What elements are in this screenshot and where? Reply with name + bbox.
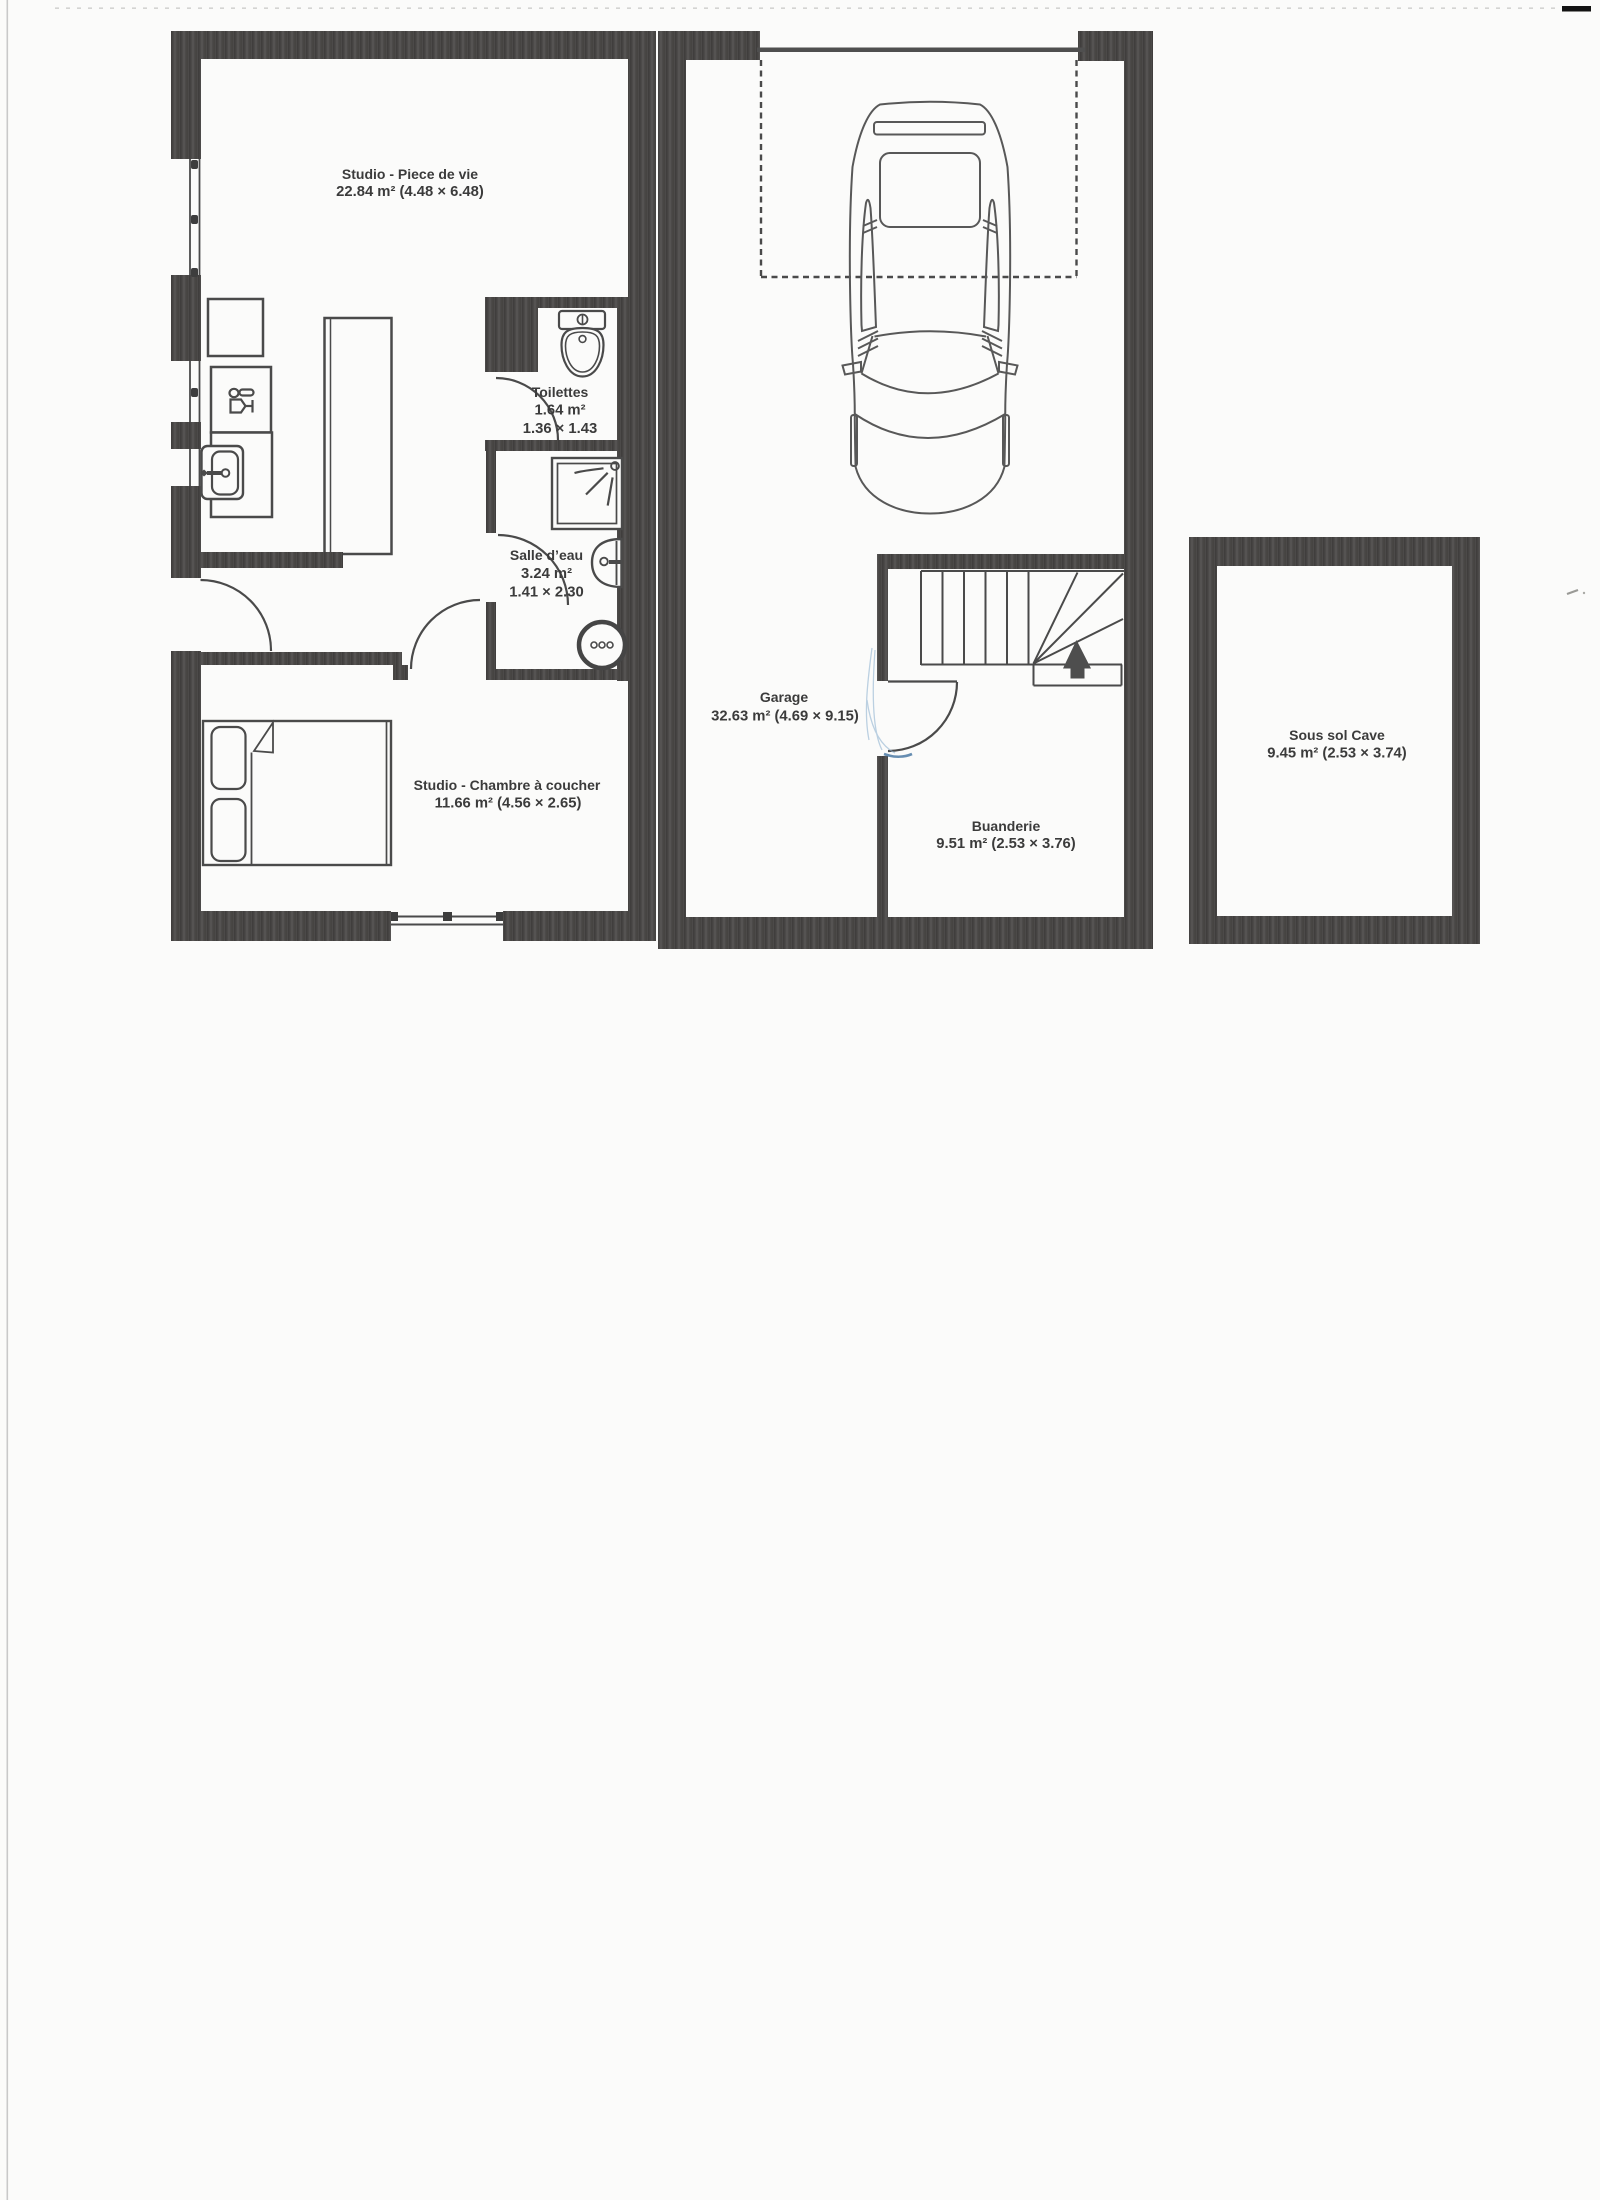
svg-text:Garage: Garage — [760, 689, 808, 705]
svg-text:22.84 m² (4.48 × 6.48): 22.84 m² (4.48 × 6.48) — [336, 184, 484, 200]
svg-text:9.45 m² (2.53 × 3.74): 9.45 m² (2.53 × 3.74) — [1267, 746, 1406, 762]
svg-text:Salle d’eau: Salle d’eau — [510, 547, 583, 563]
svg-text:Sous sol Cave: Sous sol Cave — [1289, 727, 1385, 743]
svg-text:32.63 m² (4.69 × 9.15): 32.63 m² (4.69 × 9.15) — [711, 709, 859, 725]
svg-text:1.41 × 2.30: 1.41 × 2.30 — [509, 585, 583, 601]
svg-text:1.64 m²: 1.64 m² — [535, 403, 586, 419]
svg-text:1.36 × 1.43: 1.36 × 1.43 — [523, 421, 597, 437]
svg-text:3.24 m²: 3.24 m² — [521, 566, 572, 582]
svg-text:9.51 m² (2.53 × 3.76): 9.51 m² (2.53 × 3.76) — [936, 836, 1075, 852]
svg-text:Studio - Piece de vie: Studio - Piece de vie — [342, 166, 478, 182]
svg-text:Buanderie: Buanderie — [972, 818, 1041, 834]
svg-text:Toilettes: Toilettes — [532, 384, 589, 400]
svg-text:11.66 m² (4.56 × 2.65): 11.66 m² (4.56 × 2.65) — [435, 796, 582, 812]
svg-text:Studio - Chambre à coucher: Studio - Chambre à coucher — [414, 777, 601, 793]
